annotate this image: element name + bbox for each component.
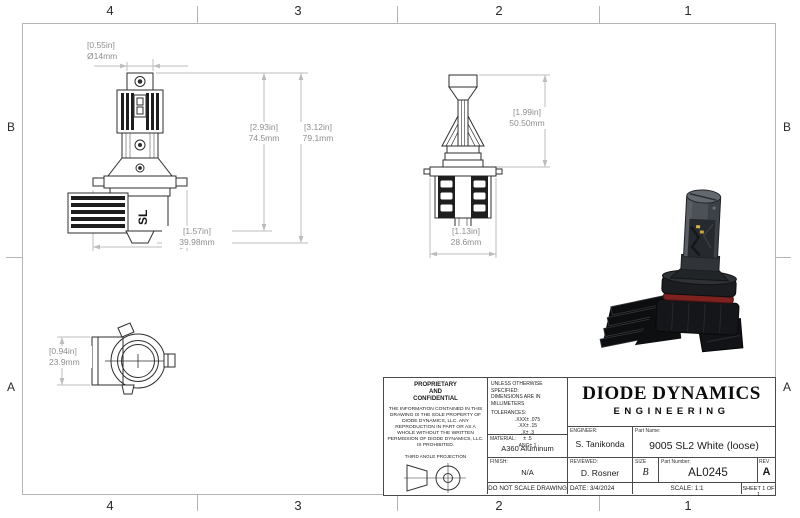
zone-label-top: 2 bbox=[488, 3, 510, 18]
material-cell: MATERIAL: A360 Aluminum bbox=[488, 435, 568, 458]
engineer-label: ENGINEER: bbox=[568, 427, 632, 434]
reviewed-cell: REVIEWED: D. Rosner bbox=[568, 458, 633, 483]
rev-label: REV bbox=[758, 458, 775, 465]
part-number-label: Part Number: bbox=[659, 458, 757, 465]
rev-cell: REV A bbox=[758, 458, 775, 483]
product-render bbox=[597, 167, 777, 352]
material-label: MATERIAL: bbox=[488, 435, 567, 442]
logo-cell: DIODE DYNAMICS ENGINEERING bbox=[568, 378, 775, 427]
part-number-cell: Part Number: AL0245 bbox=[659, 458, 758, 483]
dim-front-height-body: [2.93in]74.5mm bbox=[237, 122, 291, 144]
part-name-value: 9005 SL2 White (loose) bbox=[633, 440, 775, 452]
part-marking: SL bbox=[136, 210, 150, 225]
top-view-drawing bbox=[45, 300, 205, 450]
third-angle-projection-icon bbox=[404, 461, 468, 495]
zone-label-right: A bbox=[780, 380, 794, 394]
sheet-cell: SHEET 1 OF 1 bbox=[742, 483, 775, 494]
zone-tick bbox=[197, 6, 198, 23]
zone-label-bottom: 2 bbox=[488, 498, 510, 513]
company-division: ENGINEERING bbox=[568, 406, 775, 417]
part-name-label: Part Name: bbox=[633, 427, 775, 434]
engineer-value: S. Tanikonda bbox=[568, 439, 632, 449]
rev-value: A bbox=[758, 466, 775, 478]
do-not-scale-note: DO NOT SCALE DRAWING bbox=[488, 483, 567, 492]
do-not-scale-cell: DO NOT SCALE DRAWING bbox=[488, 483, 568, 494]
proprietary-title: PROPRIETARY bbox=[384, 382, 487, 389]
sheet-value: SHEET 1 OF 1 bbox=[742, 483, 775, 498]
units-note-line2: DIMENSIONS ARE IN MILLIMETERS bbox=[491, 394, 567, 407]
dim-front-height-total: [3.12in]79.1mm bbox=[292, 122, 344, 144]
zone-label-left: A bbox=[4, 380, 18, 394]
units-note-line1: UNLESS OTHERWISE SPECIFIED: bbox=[491, 381, 567, 394]
zone-label-bottom: 3 bbox=[287, 498, 309, 513]
title-block: PROPRIETARY AND CONFIDENTIAL THE INFORMA… bbox=[383, 377, 776, 496]
date-cell: DATE: 3/4/2024 bbox=[568, 483, 633, 494]
projection-label: THIRD ANGLE PROJECTION bbox=[384, 454, 487, 459]
reviewed-label: REVIEWED: bbox=[568, 458, 632, 465]
zone-tick bbox=[397, 6, 398, 23]
zone-tick bbox=[599, 494, 600, 511]
dim-top-height: [0.94in]23.9mm bbox=[48, 346, 92, 368]
proprietary-notice: THE INFORMATION CONTAINED IN THIS DRAWIN… bbox=[384, 404, 487, 450]
engineer-cell: ENGINEER: S. Tanikonda bbox=[568, 427, 633, 458]
zone-label-top: 3 bbox=[287, 3, 309, 18]
material-value: A360 Aluminum bbox=[488, 444, 567, 453]
scale-cell: SCALE: 1:1 bbox=[633, 483, 742, 494]
date-label: DATE: bbox=[570, 485, 588, 492]
zone-tick bbox=[197, 494, 198, 511]
drawing-sheet: 4 3 2 1 4 3 2 1 B A B A bbox=[0, 0, 800, 518]
size-label: SIZE bbox=[633, 458, 658, 465]
dim-front-diameter: [0.55in]Ø14mm bbox=[86, 40, 138, 62]
reviewed-value: D. Rosner bbox=[568, 468, 632, 478]
dim-front-width: [1.57in]39.98mm bbox=[162, 226, 232, 248]
zone-tick bbox=[599, 6, 600, 23]
finish-value: N/A bbox=[488, 468, 567, 477]
zone-label-bottom: 4 bbox=[99, 498, 121, 513]
scale-value: SCALE: 1:1 bbox=[633, 483, 741, 492]
specs-cell: UNLESS OTHERWISE SPECIFIED: DIMENSIONS A… bbox=[488, 378, 568, 435]
size-cell: SIZE B bbox=[633, 458, 659, 483]
company-name: DIODE DYNAMICS bbox=[568, 383, 775, 405]
zone-label-top: 1 bbox=[677, 3, 699, 18]
zone-tick bbox=[6, 257, 22, 258]
zone-label-right: B bbox=[780, 120, 794, 134]
finish-label: FINISH: bbox=[488, 458, 567, 465]
zone-label-top: 4 bbox=[99, 3, 121, 18]
dim-side-height: [1.99in]50.50mm bbox=[499, 107, 555, 129]
part-name-cell: Part Name: 9005 SL2 White (loose) bbox=[633, 427, 775, 458]
dim-side-width: [1.13in]28.6mm bbox=[441, 226, 491, 248]
zone-label-bottom: 1 bbox=[677, 498, 699, 513]
zone-tick bbox=[775, 257, 791, 258]
part-number-value: AL0245 bbox=[659, 467, 757, 479]
finish-cell: FINISH: N/A bbox=[488, 458, 568, 483]
proprietary-cell: PROPRIETARY AND CONFIDENTIAL THE INFORMA… bbox=[384, 378, 488, 494]
date-value: 3/4/2024 bbox=[590, 485, 615, 492]
zone-label-left: B bbox=[4, 120, 18, 134]
size-value: B bbox=[633, 467, 658, 478]
